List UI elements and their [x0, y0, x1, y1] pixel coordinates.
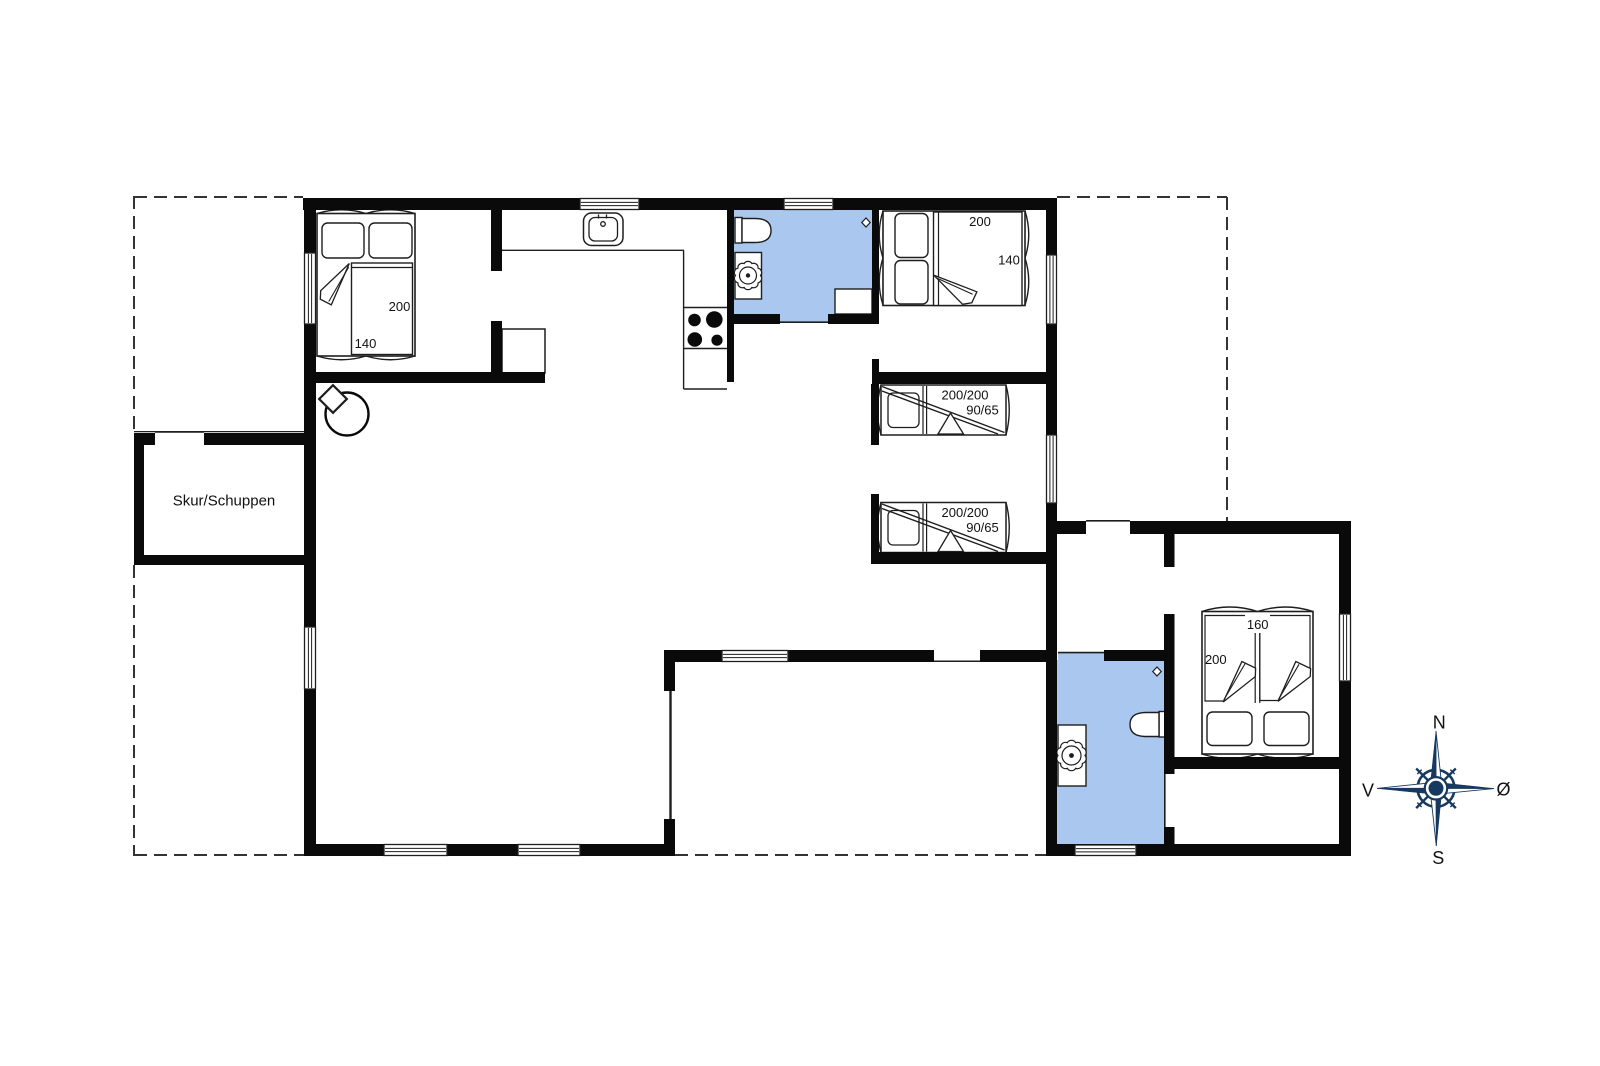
svg-text:N: N: [1433, 713, 1446, 733]
svg-text:V: V: [1362, 780, 1374, 800]
svg-text:Skur/Schuppen: Skur/Schuppen: [173, 493, 276, 510]
svg-text:S: S: [1432, 848, 1444, 868]
svg-text:140: 140: [355, 336, 377, 351]
svg-text:90/65: 90/65: [966, 403, 999, 418]
svg-text:Ø: Ø: [1496, 779, 1510, 799]
svg-text:200: 200: [389, 299, 411, 314]
svg-text:140: 140: [998, 253, 1020, 268]
svg-text:200/200: 200/200: [942, 388, 989, 403]
svg-text:200/200: 200/200: [942, 505, 989, 520]
svg-text:90/65: 90/65: [966, 520, 999, 535]
svg-text:160: 160: [1247, 617, 1269, 632]
svg-text:200: 200: [969, 214, 991, 229]
svg-text:200: 200: [1205, 652, 1227, 667]
